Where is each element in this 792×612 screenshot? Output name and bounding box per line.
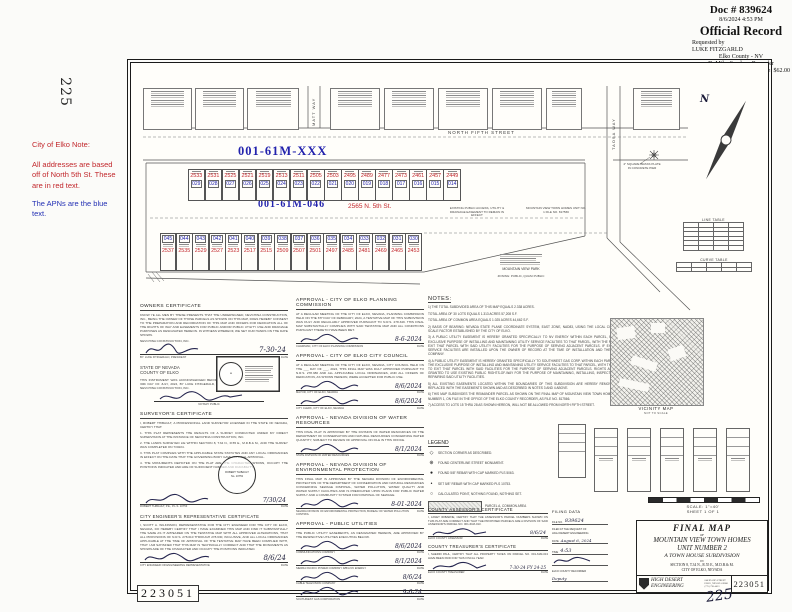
apn-scribble: [338, 100, 372, 103]
lot-apn: 043: [195, 235, 206, 243]
owners-certificate-title: OWNERS CERTIFICATE: [140, 304, 288, 311]
title-block-number: 223051: [731, 576, 768, 592]
lot-cell: 0332481: [356, 233, 373, 271]
unit-dim-scribble: [731, 458, 745, 461]
easement-label: EXISTING PUBLIC ACCESS, UTILITY & DRAINA…: [446, 207, 508, 218]
approval-signature-date: 8/6/2024: [395, 543, 422, 550]
date-label: DATE: [417, 551, 424, 554]
scanned-plat-page: Doc # 839624 8/6/2024 4:53 PM Official R…: [0, 0, 792, 612]
note-item: TOTAL AREA OF 30 LOTS EQUALS 1.313 ACRES…: [428, 312, 624, 316]
lot-address: 2489: [361, 174, 373, 180]
north-fifth-street-label: NORTH FIFTH STREET: [448, 130, 515, 135]
lot-cell: 2477018: [375, 169, 393, 201]
lot-address: 2529: [195, 249, 207, 255]
surveyor-item: 4. THE MONUMENTS DEPICTED ON THE PLAT AR…: [140, 461, 288, 469]
date-label: DATE: [417, 345, 424, 348]
lot-apn: 027: [225, 180, 236, 188]
approval-block: APPROVAL - PUBLIC UTILITIESTHE PUBLIC UT…: [296, 522, 424, 601]
title-block: FINAL MAP OF MOUNTAIN VIEW TOWN HOMES UN…: [636, 520, 768, 593]
city-engineer-certificate: CITY ENGINEER'S REPRESENTATIVE CERTIFICA…: [140, 514, 288, 567]
firm-name-1: HIGH DESERT: [651, 578, 683, 583]
lot-cell: 2511023: [290, 169, 308, 201]
note-item: 2) BASIS OF BEARING: NEVADA STATE PLANE …: [428, 325, 624, 333]
approval-signature-row: 9-6-24: [296, 587, 424, 597]
park-zoning-label: ZONING: PUBLIC, QUASI PUBLIC: [494, 275, 548, 279]
lot-address: 2521: [241, 174, 253, 180]
lot-address: 2517: [244, 249, 256, 255]
filing-time-value: 4:53: [560, 548, 571, 554]
owners-certificate-body: KNOW YE ALL MEN BY THESE PRESENTS THAT T…: [140, 313, 288, 337]
elko-note-red: All addresses are based off of North 5th…: [32, 160, 118, 190]
lot-address: 2469: [375, 249, 387, 255]
lot-cell: 2489019: [358, 169, 376, 201]
lot-apn: 034: [342, 235, 353, 243]
sheet-number: SHEET 1 OF 1: [687, 509, 720, 514]
county-name: Elko County - NV: [692, 54, 790, 60]
lot-address: 2507: [293, 249, 305, 255]
unit-dim-scribble: [665, 458, 679, 461]
signature: [298, 554, 362, 567]
apn-scribble: [256, 104, 291, 107]
legend-list: ◇SECTION CORNER AS DESCRIBED.⊕FOUND CENT…: [428, 450, 558, 497]
apn-scribble: [151, 95, 184, 98]
lot-cell: 2495020: [341, 169, 359, 201]
apn-scribble: [256, 91, 291, 94]
lot-apn: 016: [412, 180, 423, 188]
lot-cell: 0342485: [340, 233, 357, 271]
lot-apn: 030: [408, 235, 419, 243]
lot-apn: 038: [277, 235, 288, 243]
lot-apn: 020: [344, 180, 355, 188]
file-no-value: 839624: [565, 518, 584, 524]
requested-by-label: Requested by: [692, 40, 790, 46]
filing-recorder-label: ELKO COUNTY RECORDER: [552, 570, 608, 573]
assessor-signature: [430, 526, 490, 538]
adjacent-parcel-box: [633, 88, 680, 130]
treasurer-date: 7-30-24 FY 24-25: [509, 565, 546, 570]
apn-scribble: [151, 104, 184, 107]
unit1-label: MOUNTAIN VIEW TOWN HOMES UNIT NO. 1 FILE…: [526, 207, 586, 214]
lot-address: 2495: [344, 174, 356, 180]
date-label: DATE: [417, 407, 424, 410]
lot-apn: 021: [327, 180, 338, 188]
city-line: CITY OF ELKO, NEVADA: [637, 568, 767, 573]
file-no-label: FILE NO.: [552, 521, 563, 524]
owners-certificate: OWNERS CERTIFICATE KNOW YE ALL MEN BY TH…: [140, 304, 288, 406]
approval-body: THIS FINAL MAP IS APPROVED BY THE NEVADA…: [296, 477, 424, 497]
lot-apn: 017: [395, 180, 406, 188]
apn-scribble: [392, 104, 426, 107]
signature: [298, 585, 362, 598]
adjacent-parcel-box: [195, 88, 244, 130]
apn-new-lots: 001-61M-XXX: [238, 144, 327, 159]
notes-section: NOTES: 1) THE TOTAL SUBDIVIDED AREA OF T…: [428, 287, 624, 410]
lot-cell: 2449014: [443, 169, 461, 201]
lot-address: 2473: [395, 174, 407, 180]
legend-symbol-icon: ◇: [428, 450, 435, 456]
legend-section: LEGEND ◇SECTION CORNER AS DESCRIBED.⊕FOU…: [428, 431, 558, 516]
vicinity-map-caption: VICINITY MAP NOT TO SCALE: [610, 406, 702, 415]
apn-scribble: [392, 100, 426, 103]
apn-scribble: [203, 100, 236, 103]
typical-unit-diagram: [726, 428, 750, 492]
note-item: 7) ACCESS TO LOTS 15 THRU 28 AS SHOWN HE…: [428, 403, 624, 407]
elko-note-blue: The APNs are the blue text.: [32, 199, 118, 219]
county-certificates-column: COUNTY ASSESSOR'S CERTIFICATE I, JANET I…: [428, 507, 548, 580]
note-item: 1) THE TOTAL SUBDIVIDED AREA OF THIS MAP…: [428, 305, 624, 309]
lot-address: 2453: [408, 249, 420, 255]
lot-apn: 042: [211, 235, 222, 243]
engineering-strip: HIGH DESERT ENGINEERING 640 IDAHO STREET…: [637, 575, 767, 592]
filing-title: FILING DATA: [552, 509, 608, 514]
lot-apn: 031: [392, 235, 403, 243]
notes-list: 1) THE TOTAL SUBDIVIDED AREA OF THIS MAP…: [428, 305, 624, 407]
lot-cell: 0322469: [372, 233, 389, 271]
date-label: DATE: [281, 356, 288, 359]
note-item: TOTAL AREA OF COMMON AREA EQUALS 1.025 A…: [428, 318, 624, 322]
note-item: 4) A PUBLIC UTILITY EASEMENT IS HEREBY G…: [428, 359, 624, 380]
adjacent-parcel-box: [247, 88, 299, 130]
approval-title: APPROVAL - CITY OF ELKO PLANNING COMMISS…: [296, 298, 424, 310]
lot-cell: 2505022: [307, 169, 325, 201]
lot-apn: 039: [261, 235, 272, 243]
legend-title: LEGEND: [428, 440, 449, 447]
apn-scribble: [392, 91, 426, 94]
apn-scribble: [500, 100, 534, 103]
lot-cell: 2503021: [324, 169, 342, 201]
city-engineer-signature: [142, 550, 212, 564]
note-item: 6) THIS MAP SUBDIVIDES THE REMAINDER PAR…: [428, 392, 624, 400]
apn-scribble: [641, 100, 673, 103]
date-label: DATE: [541, 537, 548, 540]
legend-item-label: CALCULATED POINT, NOTHING FOUND, NOTHING…: [438, 492, 522, 496]
approval-signature-date: 8-01-2024: [391, 501, 422, 508]
bottom-page-number: 225: [705, 586, 734, 606]
adjacent-parcel-box: [143, 88, 192, 130]
matt-way-label: MATT WAY: [311, 98, 316, 126]
date-label: DATE: [417, 567, 424, 570]
lot-apn: 015: [429, 180, 440, 188]
lot-address: 2457: [429, 174, 441, 180]
assessor-date: 8/6/24: [530, 530, 546, 536]
vicinity-map: [610, 318, 704, 406]
lot-address: 2533: [190, 174, 202, 180]
unit-dim-scribble: [599, 458, 613, 461]
date-label: DATE: [417, 582, 424, 585]
surveyor-seal-number: No. 10753: [231, 475, 243, 478]
surveyor-seal: ROBERT THIBAULT No. 10753: [218, 456, 256, 494]
apn-scribble: [392, 95, 426, 98]
date-label: DATE: [417, 510, 424, 516]
assessor-signature-row: 8/6/24: [428, 529, 548, 537]
subdivision-name-1: MOUNTAIN VIEW TOWN HOMES: [637, 537, 767, 545]
legend-item: ◇SECTION CORNER AS DESCRIBED.: [428, 450, 558, 456]
lot-address: 2461: [412, 174, 424, 180]
apn-scribble: [500, 95, 534, 98]
lot-address: 2511: [293, 174, 305, 180]
lot-address: 2501: [309, 249, 321, 255]
owner-signature-row: 7-30-24: [140, 345, 288, 355]
lot-row-north: 2533029253102825250272521026251902525130…: [188, 169, 461, 201]
notes-title: NOTES:: [428, 296, 451, 303]
lot-cell: 2513024: [273, 169, 291, 201]
approval-block: APPROVAL - CITY OF ELKO PLANNING COMMISS…: [296, 298, 424, 348]
legend-item: ○CALCULATED POINT, NOTHING FOUND, NOTHIN…: [428, 491, 558, 497]
assessor-certificate: COUNTY ASSESSOR'S CERTIFICATE I, JANET I…: [428, 507, 548, 540]
approval-block: APPROVAL - NEVADA DIVISION OF ENVIRONMEN…: [296, 463, 424, 516]
lot-apn: 022: [310, 180, 321, 188]
lot-apn: 014: [447, 180, 458, 188]
lot-apn: 045: [162, 235, 173, 243]
lot-apn: 019: [361, 180, 372, 188]
treasurer-certificate: COUNTY TREASURER'S CERTIFICATE I, SHERRI…: [428, 544, 548, 574]
signature: [298, 570, 362, 583]
date-label: DATE: [541, 571, 548, 574]
apn-scribble: [500, 104, 534, 107]
apn-scribble: [641, 104, 673, 107]
approval-signature-row: 8-6-2024: [296, 334, 424, 344]
lot-apn: 036: [310, 235, 321, 243]
apn-scribble: [338, 91, 372, 94]
lot-address: 2527: [211, 249, 223, 255]
lot-cell: 0392515: [258, 233, 275, 271]
surveyors-items: 1. THIS PLAT REPRESENTS THE RESULTS OF A…: [140, 431, 288, 469]
owner-signature-date: 7-30-24: [259, 346, 286, 354]
date-label: DATE: [281, 564, 288, 567]
monument-label: 4" SQUARE BRASS PLATE IN CONCRETE PIER: [622, 163, 662, 170]
notary-signature-row: [154, 392, 264, 402]
adjacent-parcel-box: [438, 88, 488, 130]
surveyor-item: 1. THIS PLAT REPRESENTS THE RESULTS OF A…: [140, 431, 288, 439]
lot-cell: 2461016: [409, 169, 427, 201]
city-engineer-body: I, SCOTT A. WILKINSON, REPRESENTATIVE FO…: [140, 523, 288, 551]
apn-scribble: [552, 91, 576, 94]
notary-signature: [156, 389, 246, 403]
left-certificates-column: OWNERS CERTIFICATE KNOW YE ALL MEN BY TH…: [140, 304, 288, 573]
treasurer-signature-row: 7-30-24 FY 24-25: [428, 563, 548, 571]
approval-body: AT A REGULAR MEETING OF THE CITY OF ELKO…: [296, 363, 424, 379]
lot-address: 2505: [310, 174, 322, 180]
apn-scribble: [256, 100, 291, 103]
apn-scribble: [446, 100, 480, 103]
lot-cell: 0382509: [274, 233, 291, 271]
approval-signature-date: 9-6-24: [403, 589, 422, 596]
lot-cell: 2531028: [205, 169, 223, 201]
lot-address: 2535: [178, 249, 190, 255]
apn-scribble: [446, 91, 480, 94]
apn-scribble: [151, 91, 184, 94]
lot-address: 2519: [259, 174, 271, 180]
apn-scribble: [552, 100, 576, 103]
apn-scribble: [641, 91, 673, 94]
approvals-column: APPROVAL - CITY OF ELKO PLANNING COMMISS…: [296, 298, 424, 607]
legend-symbol-icon: •: [428, 481, 435, 487]
taosa-way-label: TAOSA WAY: [611, 118, 616, 150]
apn-scribble: [203, 91, 236, 94]
file-number-stamp: 223051: [137, 585, 199, 602]
signature: [298, 442, 362, 455]
surveyors-certificate-title: SURVEYOR'S CERTIFICATE: [140, 412, 288, 419]
filing-date-value: August 6, 2024: [561, 538, 592, 543]
approval-signature-date: 8-6-2024: [395, 336, 422, 343]
legend-item-label: SECTION CORNER AS DESCRIBED.: [438, 451, 492, 455]
signature: [298, 332, 362, 345]
signature: [298, 497, 362, 510]
approval-signature-row: 8/1/2024: [296, 444, 424, 454]
lot-address: 2481: [358, 249, 370, 255]
city-engineer-signature-row: 8/6/24: [140, 553, 288, 563]
lot-address: 2523: [227, 249, 239, 255]
recorder-signature: [552, 555, 592, 565]
unit-dim-scribble: [698, 458, 712, 461]
surveyor-signature-date: 7/30/24: [263, 497, 286, 504]
subdivision-name-2: UNIT NUMBER 2: [637, 545, 767, 553]
lot-cell: 2519025: [256, 169, 274, 201]
approval-block: APPROVAL - CITY OF ELKO CITY COUNCILAT A…: [296, 354, 424, 410]
recording-datetime: 8/6/2024 4:53 PM: [692, 17, 790, 23]
signature: [298, 394, 362, 407]
lot-apn: 041: [228, 235, 239, 243]
lot-cell: 0452537: [160, 233, 177, 271]
north-letter: N: [700, 94, 709, 105]
typical-unit-diagram: [660, 428, 684, 492]
apn-scribble: [203, 95, 236, 98]
legend-item: ●FOUND 5/8" REBAR WITH CAP MARKED PLS 50…: [428, 470, 558, 476]
lot-apn: 032: [375, 235, 386, 243]
surveyor-item: 3. THIS PLAT COMPLIES WITH THE APPLICABL…: [140, 451, 288, 459]
city-engineer-title: CITY ENGINEER'S REPRESENTATIVE CERTIFICA…: [140, 514, 288, 521]
lot-address: 2465: [391, 249, 403, 255]
lot-cell: 0422527: [209, 233, 226, 271]
lot-apn: 026: [242, 180, 253, 188]
surveyor-item: 2. THE LANDS SURVEYED LIE WITHIN SECTION…: [140, 441, 288, 449]
lot-cell: 2525027: [222, 169, 240, 201]
approval-signature-row: 8/6/2024: [296, 381, 424, 391]
legend-item-label: FOUND 5/8" REBAR WITH CAP MARKED PLS 506…: [438, 471, 514, 475]
lot-cell: 2521026: [239, 169, 257, 201]
lot-apn: 037: [293, 235, 304, 243]
filing-time-label: TIME: [552, 551, 558, 554]
lot-row-south: 0452537044253504325290422527041252304025…: [160, 233, 422, 271]
apn-scribble: [500, 91, 534, 94]
lot-address: 2509: [277, 249, 289, 255]
date-label: DATE: [417, 598, 424, 601]
approval-signature-date: 8/6/2024: [395, 383, 422, 390]
lot-address: 2515: [260, 249, 272, 255]
surveyors-certificate: SURVEYOR'S CERTIFICATE I, ROBERT THIBAUL…: [140, 412, 288, 509]
lot-cell: 0302453: [405, 233, 422, 271]
typical-unit-diagram: [627, 428, 651, 492]
lot-address: 2513: [276, 174, 288, 180]
approval-signature-date: 8/1/2024: [395, 446, 422, 453]
surveyor-signature-row: 7/30/24: [140, 495, 288, 505]
scale-text: SCALE: 1"=40' SHEET 1 OF 1: [648, 504, 758, 514]
signature: [298, 379, 362, 392]
lot-address: 2525: [224, 174, 236, 180]
lot-cell: 0352497: [323, 233, 340, 271]
line-table: LINE TABLE: [683, 218, 744, 251]
notary-stamp: ★: [216, 356, 280, 392]
lot-address: 2477: [378, 174, 390, 180]
legend-item-label: FOUND CENTERLINE STREET MONUMENT.: [438, 461, 504, 465]
lot-cell: 0442535: [176, 233, 193, 271]
lot-apn: 018: [378, 180, 389, 188]
apn-scribble: [446, 104, 480, 107]
elko-note: City of Elko Note: All addresses are bas…: [32, 140, 118, 219]
typical-unit-diagram: [594, 428, 618, 492]
lot-address: 2503: [327, 174, 339, 180]
note-item: 3) A PUBLIC UTILITY EASEMENT IS HEREBY G…: [428, 335, 624, 356]
filing-date-label: DATE: [552, 540, 559, 543]
signature: [298, 539, 362, 552]
apn-scribble: [151, 100, 184, 103]
filing-request-value: HIGH DESERT ENGINEERING: [552, 532, 608, 535]
approval-signature-labels: NEVADA DIVISION OF ENVIRONMENTAL PROTECT…: [296, 510, 424, 516]
park-label: MOUNTAIN VIEW PARK: [498, 267, 544, 271]
lot-apn: 024: [276, 180, 287, 188]
notary-seal-icon: ★: [219, 362, 243, 386]
approval-signature-date: 8/1/2024: [395, 558, 422, 565]
lot-apn: 029: [191, 180, 202, 188]
doc-number: Doc # 839624: [692, 4, 790, 16]
park-apn-scribble: [500, 254, 542, 265]
lot-apn: 040: [244, 235, 255, 243]
lot-cell: 0362501: [307, 233, 324, 271]
note-item: 5) ALL EXISTING EASEMENTS LOCATED WITHIN…: [428, 382, 624, 390]
apn-scribble: [256, 95, 291, 98]
filing-data: FILING DATA FILE NO. 839624 FILED AT THE…: [552, 509, 608, 582]
firm-name-2: ENGINEERING: [651, 584, 684, 589]
lot-cell: 0312465: [389, 233, 406, 271]
adjacent-parcel-box: [330, 88, 380, 130]
lot-cell: 2457015: [426, 169, 444, 201]
legend-item: ⊕FOUND CENTERLINE STREET MONUMENT.: [428, 460, 558, 466]
apn-scribble: [203, 104, 236, 107]
legend-symbol-icon: ⊕: [428, 460, 435, 466]
lot-apn: 035: [326, 235, 337, 243]
date-label: DATE: [417, 391, 424, 394]
apn-scribble: [338, 95, 372, 98]
approval-body: THIS FINAL PLAT IS APPROVED BY THE DIVIS…: [296, 430, 424, 442]
deputy-signature: Deputy: [552, 576, 567, 581]
lot-cell: 0372507: [291, 233, 308, 271]
legend-item: •SET 5/8" REBAR WITH CAP MARKED PLS 1075…: [428, 481, 558, 487]
assessor-title: COUNTY ASSESSOR'S CERTIFICATE: [428, 507, 548, 514]
approval-title: APPROVAL - NEVADA DIVISION OF WATER RESO…: [296, 416, 424, 428]
scale-bar: [648, 497, 760, 503]
approval-body: AT A REGULAR MEETING OF THE CITY OF ELKO…: [296, 312, 424, 332]
curve-table: CURVE TABLE: [676, 258, 752, 272]
approval-signature-row: 8/6/24: [296, 572, 424, 582]
lot-address: 2449: [446, 174, 458, 180]
approval-signature-date: 8/6/2024: [395, 398, 422, 405]
elko-note-title: City of Elko Note:: [32, 140, 118, 150]
apn-scribble: [552, 95, 576, 98]
lot-apn: 033: [359, 235, 370, 243]
lot-cell: 0402517: [241, 233, 258, 271]
requested-by: LUKE FITZGARLD: [692, 47, 790, 53]
parcel-a-address: 2565 N. 5th St.: [348, 203, 391, 210]
owner-signature: [142, 342, 202, 356]
treasurer-signature: [430, 560, 490, 572]
apn-scribble: [641, 95, 673, 98]
lot-address: 2485: [342, 249, 354, 255]
firm-logo-icon: [639, 578, 649, 590]
vicinity-subtitle: NOT TO SCALE: [610, 411, 702, 415]
lot-address: 2537: [162, 249, 174, 255]
approval-signature-row: 8/6/2024: [296, 396, 424, 406]
lot-apn: 044: [179, 235, 190, 243]
